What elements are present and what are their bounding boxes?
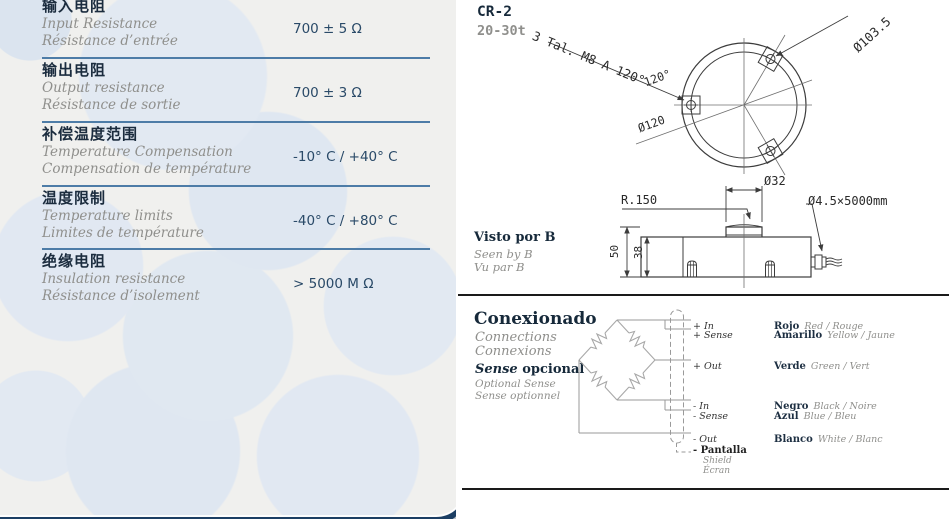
wire-color-name: Verde (774, 361, 806, 372)
spec-value: -40° C / +80° C (293, 213, 398, 229)
row-divider (42, 57, 430, 59)
view-b-label-es: Visto por B (474, 230, 555, 245)
wire-row-plus-sense: + SenseAmarillo Yellow / Jaune (693, 323, 895, 342)
spec-label-fr: Résistance de sortie (42, 97, 430, 114)
wire-color-name: Azul (774, 411, 799, 422)
body-height-label: 38 (632, 246, 645, 259)
wire-row-plus-out: + OutVerde Green / Vert (693, 354, 870, 373)
signal-label: - Out (693, 434, 774, 445)
wire-color-translation: Blue / Bleu (804, 411, 857, 422)
spec-label-cn: 温度限制 (42, 189, 430, 208)
signal-label: + Out (693, 361, 774, 372)
shield-label-fr: Écran (703, 466, 730, 476)
shield-label-es: - Pantalla (693, 445, 747, 456)
mechanical-drawing (460, 0, 949, 295)
spec-label-cn: 绝缘电阻 (42, 252, 430, 271)
spec-label-fr: Résistance d’entrée (42, 33, 430, 50)
total-height-label: 50 (608, 245, 621, 258)
wire-color-translation: Yellow / Jaune (827, 330, 895, 341)
spec-row-output-resistance: 输出电阻 Output resistance Résistance de sor… (42, 61, 430, 123)
datasheet-page: 输入电阻 Input Resistance Résistance d’entré… (0, 0, 949, 519)
spec-label-en: Output resistance (42, 80, 430, 97)
spec-label-en: Input Resistance (42, 16, 430, 33)
wire-color-translation: White / Blanc (818, 434, 883, 445)
row-divider (42, 248, 430, 250)
spec-label-cn: 输入电阻 (42, 0, 430, 16)
spec-value: 700 ± 3 Ω (293, 85, 362, 101)
spec-value: 700 ± 5 Ω (293, 21, 362, 37)
view-b-label-en: Seen by B (474, 247, 533, 261)
spec-row-input-resistance: 输入电阻 Input Resistance Résistance d’entré… (42, 0, 430, 59)
wire-color-translation: Green / Vert (811, 361, 870, 372)
spec-row-temp-limits: 温度限制 Temperature limits Limites de tempé… (42, 189, 430, 251)
cable-connector (811, 255, 842, 269)
view-b-label-fr: Vu par B (474, 260, 524, 274)
wire-row-minus-out: - OutBlanco White / Blanc (693, 427, 883, 446)
boss-diameter-label: Ø32 (764, 174, 786, 188)
wire-color-name: Blanco (774, 434, 813, 445)
spec-label-cn: 补偿温度范围 (42, 125, 430, 144)
cable-spec-label: Ø4.5×5000mm (808, 194, 887, 208)
spec-row-insulation-resistance: 绝缘电阻 Insulation resistance Résistance d’… (42, 252, 430, 314)
row-divider (42, 185, 430, 187)
wire-row-minus-sense: - SenseAzul Blue / Bleu (693, 404, 856, 423)
spec-value: > 5000 M Ω (293, 276, 374, 292)
wire-color-name: Amarillo (774, 330, 822, 341)
row-divider (42, 121, 430, 123)
top-view-drawing (548, 16, 848, 175)
spec-table: 输入电阻 Input Resistance Résistance d’entré… (42, 0, 430, 310)
shield-label-en: Shield (703, 456, 732, 466)
spec-row-temp-compensation: 补偿温度范围 Temperature Compensation Compensa… (42, 125, 430, 187)
sphere-radius-label: R.150 (621, 193, 657, 207)
signal-label: + Sense (693, 330, 774, 341)
drawing-section: CR-2 20-30t (456, 0, 949, 519)
spec-label-cn: 输出电阻 (42, 61, 430, 80)
spec-value: -10° C / +40° C (293, 149, 398, 165)
signal-label: - Sense (693, 411, 774, 422)
